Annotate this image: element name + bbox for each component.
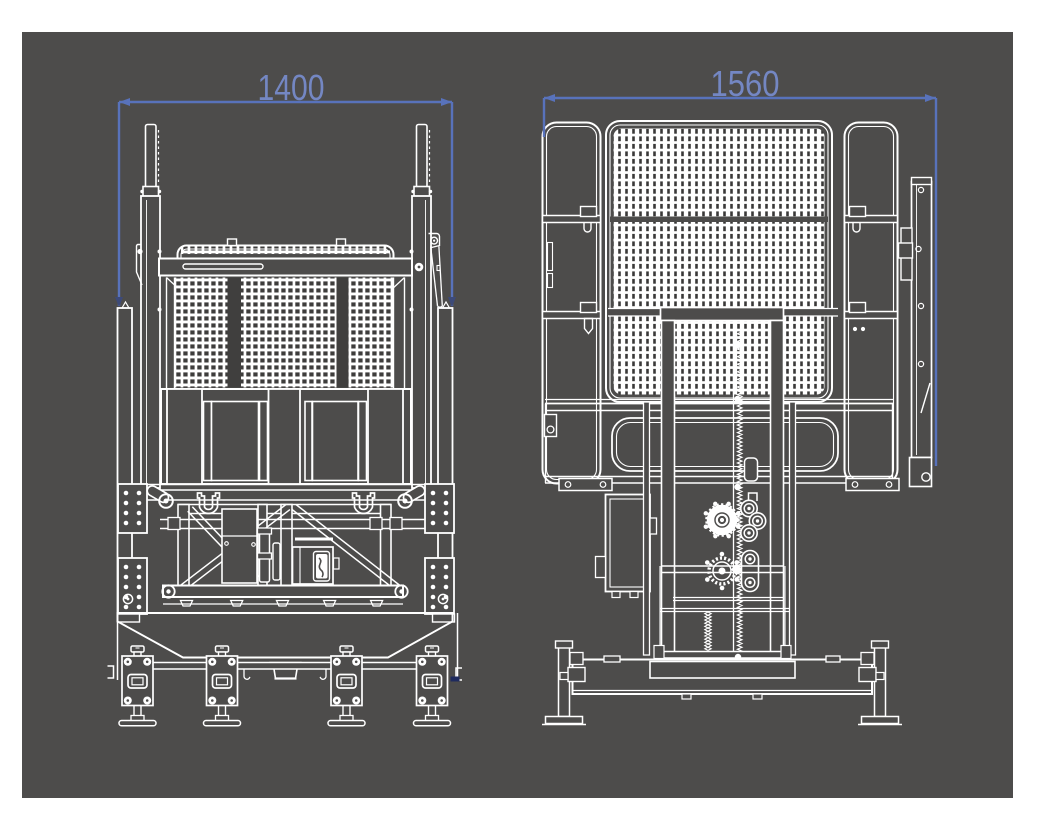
svg-text:1560: 1560	[711, 63, 780, 104]
svg-text:1400: 1400	[258, 67, 325, 108]
